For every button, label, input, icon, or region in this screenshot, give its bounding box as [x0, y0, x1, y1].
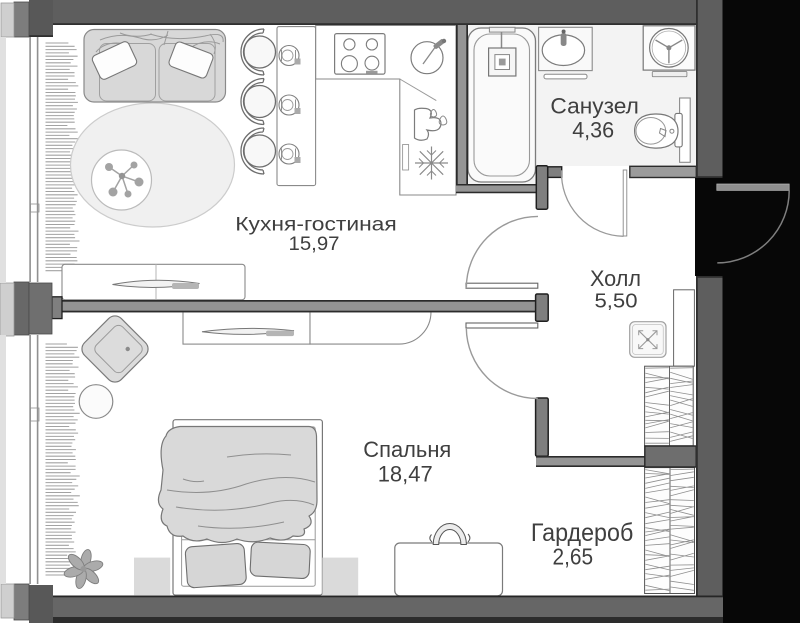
svg-text:5,50: 5,50 — [595, 291, 638, 313]
svg-text:15,97: 15,97 — [289, 234, 340, 255]
svg-text:Холл: Холл — [590, 266, 641, 291]
svg-text:18,47: 18,47 — [378, 462, 433, 487]
svg-text:Санузел: Санузел — [550, 94, 639, 119]
svg-text:Кухня-гостиная: Кухня-гостиная — [235, 215, 397, 236]
svg-text:Спальня: Спальня — [363, 437, 451, 462]
svg-text:2,65: 2,65 — [553, 544, 594, 570]
svg-text:4,36: 4,36 — [572, 118, 614, 143]
